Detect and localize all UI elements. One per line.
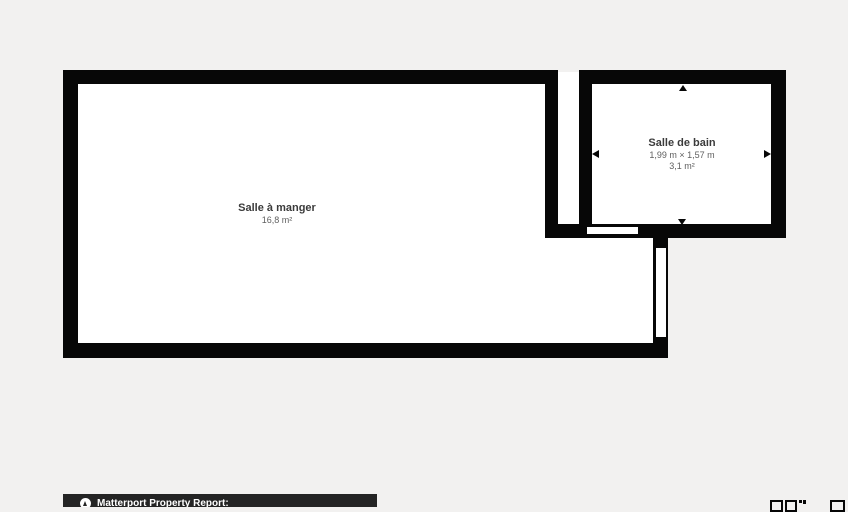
room-name: Salle à manger bbox=[238, 202, 316, 215]
square-frame-icon bbox=[830, 500, 845, 512]
wall-main-left bbox=[63, 70, 78, 358]
door-opening-main-room bbox=[656, 248, 666, 337]
matterport-logo-icon bbox=[80, 498, 91, 507]
report-footer-bar: Matterport Property Report: bbox=[63, 494, 377, 507]
wall-main-upper-right bbox=[545, 70, 558, 238]
wall-bathroom-right bbox=[771, 70, 786, 238]
report-title: Matterport Property Report: bbox=[97, 498, 229, 507]
wall-bathroom-left bbox=[579, 70, 592, 238]
qr-dot-icon bbox=[799, 500, 802, 503]
wall-main-bottom bbox=[63, 343, 668, 358]
wall-main-top bbox=[63, 70, 558, 84]
dimension-arrow-up-icon bbox=[679, 85, 687, 91]
room-area: 16,8 m² bbox=[238, 215, 316, 226]
dimension-arrow-down-icon bbox=[678, 219, 686, 225]
room-label-salle-de-bain: Salle de bain 1,99 m × 1,57 m 3,1 m² bbox=[648, 137, 715, 172]
door-opening-bathroom bbox=[587, 227, 638, 234]
footer-corner-icons bbox=[770, 500, 848, 510]
wall-gap-strip bbox=[558, 72, 579, 224]
qr-frame-icon bbox=[770, 500, 783, 512]
room-area: 3,1 m² bbox=[648, 161, 715, 172]
dimension-arrow-left-icon bbox=[592, 150, 599, 158]
room-name: Salle de bain bbox=[648, 137, 715, 150]
qr-dot-icon bbox=[803, 500, 806, 504]
qr-code-icon bbox=[785, 500, 797, 512]
room-label-salle-a-manger: Salle à manger 16,8 m² bbox=[238, 202, 316, 226]
wall-bathroom-top bbox=[579, 70, 786, 84]
dimension-arrow-right-icon bbox=[764, 150, 771, 158]
room-dimensions: 1,99 m × 1,57 m bbox=[648, 150, 715, 161]
